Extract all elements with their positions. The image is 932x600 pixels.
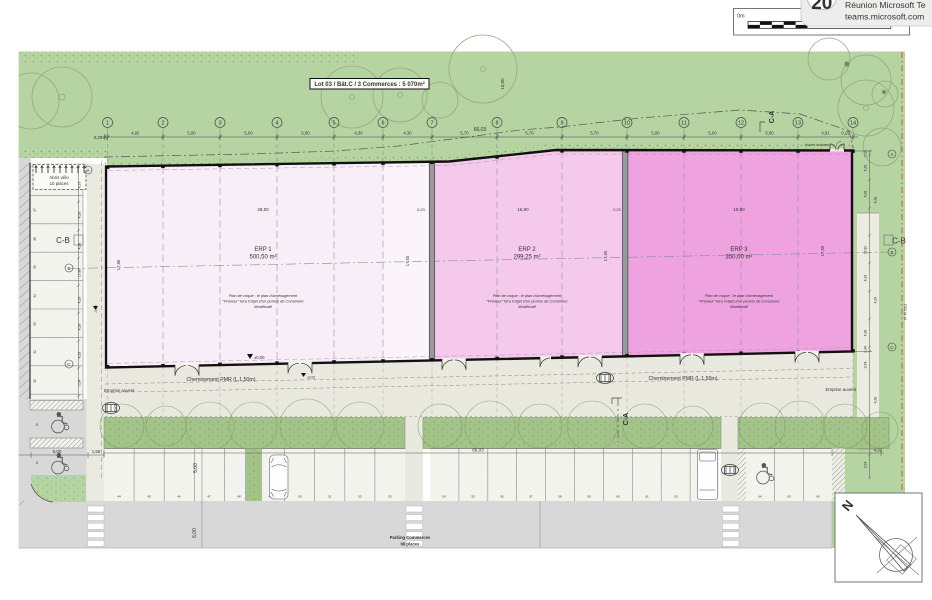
svg-text:19,90: 19,90 bbox=[733, 207, 745, 212]
svg-text:C-A: C-A bbox=[769, 111, 776, 123]
svg-text:28,50: 28,50 bbox=[257, 207, 269, 212]
svg-text:-0,02: -0,02 bbox=[307, 376, 315, 380]
svg-text:46: 46 bbox=[177, 495, 181, 499]
svg-text:17,50: 17,50 bbox=[405, 255, 410, 266]
svg-text:4,29: 4,29 bbox=[864, 165, 868, 172]
svg-text:teams.microsoft.com: teams.microsoft.com bbox=[845, 11, 924, 21]
svg-text:17,80: 17,80 bbox=[864, 246, 868, 255]
svg-text:8: 8 bbox=[36, 423, 38, 427]
svg-text:47: 47 bbox=[207, 495, 211, 499]
svg-text:16,90: 16,90 bbox=[517, 207, 529, 212]
svg-text:58: 58 bbox=[558, 495, 562, 499]
svg-text:Parking Commerces: Parking Commerces bbox=[390, 535, 431, 540]
svg-text:17,86: 17,86 bbox=[116, 259, 121, 270]
svg-text:0m: 0m bbox=[737, 14, 745, 20]
svg-text:1,58: 1,58 bbox=[92, 449, 101, 454]
svg-text:4,28: 4,28 bbox=[874, 397, 878, 404]
svg-text:500,50 m²: 500,50 m² bbox=[249, 255, 276, 261]
svg-text:350,00 m²: 350,00 m² bbox=[725, 255, 752, 261]
svg-text:4,91: 4,91 bbox=[821, 131, 830, 136]
svg-text:C-B: C-B bbox=[892, 237, 906, 246]
svg-text:66,03: 66,03 bbox=[472, 448, 484, 453]
svg-text:Cheminement PMR (L.1,50m): Cheminement PMR (L.1,50m) bbox=[187, 377, 256, 383]
svg-text:0,34: 0,34 bbox=[864, 346, 868, 353]
svg-text:17,50: 17,50 bbox=[820, 245, 825, 256]
svg-text:66,03: 66,03 bbox=[474, 127, 487, 133]
svg-text:5,00: 5,00 bbox=[651, 131, 660, 136]
svg-text:5,00: 5,00 bbox=[301, 131, 310, 136]
svg-text:56: 56 bbox=[500, 495, 504, 499]
svg-text:4,29: 4,29 bbox=[874, 297, 878, 304]
svg-text:57: 57 bbox=[529, 495, 533, 499]
svg-text:4,29: 4,29 bbox=[864, 275, 868, 282]
svg-text:Emprise auvent: Emprise auvent bbox=[104, 388, 135, 393]
svg-text:A: A bbox=[891, 152, 894, 157]
svg-text:Emprise auvent: Emprise auvent bbox=[825, 387, 856, 392]
svg-text:8: 8 bbox=[36, 461, 38, 465]
svg-text:10: 10 bbox=[624, 121, 630, 127]
svg-text:5,70: 5,70 bbox=[525, 131, 534, 136]
svg-text:6: 6 bbox=[381, 121, 384, 127]
svg-text:C-B: C-B bbox=[56, 236, 70, 245]
svg-text:Abris vélo: Abris vélo bbox=[49, 175, 69, 180]
svg-text:A: A bbox=[87, 168, 90, 173]
svg-text:3,54: 3,54 bbox=[864, 462, 868, 469]
svg-text:Lot 03 / Bât.C / 3 Commerces :: Lot 03 / Bât.C / 3 Commerces : 5 070m² bbox=[314, 81, 424, 88]
svg-text:34: 34 bbox=[33, 294, 37, 298]
svg-text:ERP 1: ERP 1 bbox=[254, 247, 272, 253]
svg-text:17,50: 17,50 bbox=[603, 250, 608, 261]
svg-text:4,29: 4,29 bbox=[78, 182, 82, 189]
svg-text:299,25 m²: 299,25 m² bbox=[513, 255, 540, 261]
svg-text:C-A: C-A bbox=[623, 413, 630, 425]
svg-text:C: C bbox=[890, 345, 893, 350]
svg-text:60: 60 bbox=[616, 495, 620, 499]
svg-text:50: 50 bbox=[298, 495, 302, 499]
svg-text:Plan de coque : le plan d'amén: Plan de coque : le plan d'aménagement bbox=[493, 293, 562, 298]
svg-text:48: 48 bbox=[237, 495, 241, 499]
svg-text:B: B bbox=[68, 266, 71, 271]
svg-text:62: 62 bbox=[674, 495, 678, 499]
svg-text:5,00: 5,00 bbox=[765, 131, 774, 136]
svg-text:"Preneur" fera l'objet d'un pe: "Preneur" fera l'objet d'un permis de Co… bbox=[486, 299, 568, 304]
svg-text:5,00: 5,00 bbox=[244, 131, 253, 136]
svg-text:4,33: 4,33 bbox=[874, 448, 883, 453]
svg-text:20: 20 bbox=[811, 0, 832, 14]
svg-text:ERP 2: ERP 2 bbox=[518, 247, 536, 253]
svg-text:54: 54 bbox=[442, 495, 446, 499]
svg-text:ERP 3: ERP 3 bbox=[730, 247, 748, 253]
svg-text:-0,02: -0,02 bbox=[94, 305, 98, 313]
svg-text:51: 51 bbox=[328, 495, 332, 499]
svg-text:14: 14 bbox=[850, 121, 856, 127]
svg-text:0,25: 0,25 bbox=[94, 135, 103, 140]
svg-text:4,29: 4,29 bbox=[78, 297, 82, 304]
svg-text:3,54: 3,54 bbox=[864, 362, 868, 369]
svg-text:0,54: 0,54 bbox=[78, 380, 82, 387]
svg-text:36: 36 bbox=[33, 237, 37, 241]
svg-text:64: 64 bbox=[758, 495, 762, 499]
svg-text:1: 1 bbox=[106, 121, 109, 127]
svg-text:4,30: 4,30 bbox=[354, 131, 363, 136]
svg-text:33: 33 bbox=[33, 322, 37, 326]
svg-text:4,29: 4,29 bbox=[78, 352, 82, 359]
svg-text:Accès toitures: Accès toitures bbox=[805, 142, 829, 147]
svg-text:69 places: 69 places bbox=[401, 542, 421, 547]
svg-text:AT 40 8991: AT 40 8991 bbox=[904, 304, 908, 320]
svg-text:55: 55 bbox=[471, 495, 475, 499]
svg-text:11: 11 bbox=[681, 121, 687, 127]
svg-text:0,20: 0,20 bbox=[613, 207, 622, 212]
svg-text:"Preneur" fera l'objet d'un pe: "Preneur" fera l'objet d'un permis de Co… bbox=[222, 299, 304, 304]
svg-text:61: 61 bbox=[645, 495, 649, 499]
svg-text:C: C bbox=[67, 362, 70, 367]
svg-text:B: B bbox=[891, 250, 894, 255]
svg-text:0,34: 0,34 bbox=[864, 150, 868, 157]
svg-text:4,28: 4,28 bbox=[874, 197, 878, 204]
svg-text:5,70: 5,70 bbox=[590, 131, 599, 136]
svg-text:52: 52 bbox=[358, 495, 362, 499]
svg-text:2: 2 bbox=[161, 121, 164, 127]
svg-text:32: 32 bbox=[33, 350, 37, 354]
svg-text:37: 37 bbox=[33, 208, 37, 212]
svg-text:44: 44 bbox=[117, 495, 121, 499]
svg-text:65: 65 bbox=[787, 495, 791, 499]
svg-text:31: 31 bbox=[33, 379, 37, 383]
svg-text:12: 12 bbox=[738, 121, 744, 127]
svg-text:4,28: 4,28 bbox=[78, 324, 82, 331]
svg-text:5,00: 5,00 bbox=[187, 131, 196, 136]
svg-text:35: 35 bbox=[33, 265, 37, 269]
svg-text:±0,00: ±0,00 bbox=[254, 355, 265, 360]
svg-text:Réunion Microsoft Te: Réunion Microsoft Te bbox=[845, 0, 926, 10]
svg-text:9: 9 bbox=[560, 121, 563, 127]
svg-text:5,00: 5,00 bbox=[193, 463, 199, 473]
svg-text:5: 5 bbox=[332, 121, 335, 127]
svg-text:5,00: 5,00 bbox=[53, 449, 62, 454]
svg-text:Modificatif: Modificatif bbox=[518, 304, 536, 309]
svg-text:66: 66 bbox=[816, 495, 820, 499]
svg-text:10 places: 10 places bbox=[50, 181, 70, 186]
svg-text:Modificatif: Modificatif bbox=[730, 304, 748, 309]
svg-text:4,28: 4,28 bbox=[864, 330, 868, 337]
svg-text:4,28: 4,28 bbox=[78, 212, 82, 219]
svg-text:7: 7 bbox=[430, 121, 433, 127]
svg-text:4,30: 4,30 bbox=[403, 131, 412, 136]
svg-text:5,70: 5,70 bbox=[460, 131, 469, 136]
svg-text:Modificatif: Modificatif bbox=[254, 304, 272, 309]
svg-text:59: 59 bbox=[587, 495, 591, 499]
svg-text:17,86: 17,86 bbox=[78, 269, 82, 278]
svg-text:53: 53 bbox=[388, 495, 392, 499]
svg-text:Plan de coque : le plan d'amén: Plan de coque : le plan d'aménagement bbox=[705, 293, 774, 298]
svg-text:4,28: 4,28 bbox=[78, 243, 82, 250]
svg-text:4,28: 4,28 bbox=[864, 191, 868, 198]
svg-text:45: 45 bbox=[147, 495, 151, 499]
svg-text:4,92: 4,92 bbox=[131, 131, 140, 136]
svg-text:"Preneur" fera l'objet d'un pe: "Preneur" fera l'objet d'un permis de Co… bbox=[698, 299, 780, 304]
svg-text:10,00: 10,00 bbox=[500, 78, 505, 90]
svg-text:Cheminement PMR (L.1,50m): Cheminement PMR (L.1,50m) bbox=[649, 376, 718, 382]
svg-text:8: 8 bbox=[495, 121, 498, 127]
svg-text:0,20: 0,20 bbox=[417, 207, 426, 212]
svg-text:6,00: 6,00 bbox=[192, 528, 198, 538]
svg-text:Plan de coque : le plan d'amén: Plan de coque : le plan d'aménagement bbox=[229, 293, 298, 298]
svg-text:3: 3 bbox=[218, 121, 221, 127]
svg-text:4: 4 bbox=[275, 121, 278, 127]
svg-text:13: 13 bbox=[795, 121, 801, 127]
svg-text:5,00: 5,00 bbox=[708, 131, 717, 136]
